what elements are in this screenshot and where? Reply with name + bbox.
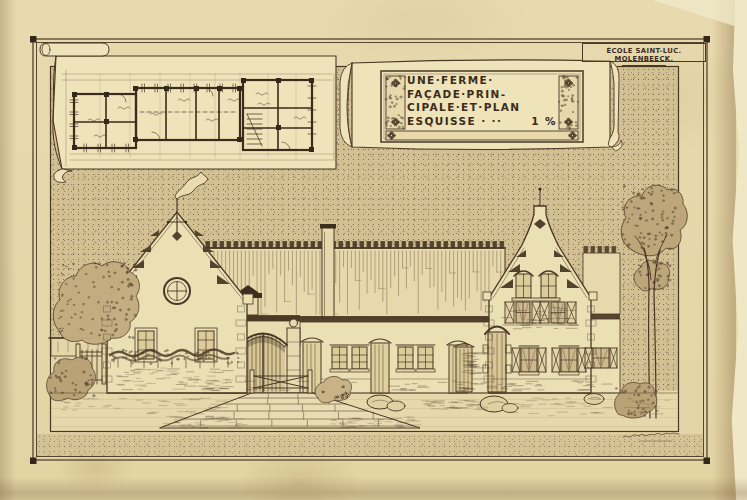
tree-right <box>615 185 688 418</box>
school-stamp-label: ÉCOLE SAINT-LUC. MOLENBEECK. <box>583 44 705 63</box>
floor-plan-scroll <box>40 43 336 183</box>
wing-window <box>585 348 617 368</box>
title-cartouche: UNE·FERME· FAÇADE·PRIN- CIPALE·ET·PLAN E… <box>407 73 557 134</box>
page-bottom-shadow <box>0 477 747 500</box>
weathervane <box>167 172 208 231</box>
school-stamp: ÉCOLE SAINT-LUC. MOLENBEECK. <box>582 43 706 62</box>
bush-right <box>615 382 657 418</box>
elevation-and-plan-artwork <box>0 0 747 500</box>
cartouche-line-1: UNE·FERME· <box>407 73 557 87</box>
artist-signature <box>623 433 679 441</box>
wing-door <box>454 344 474 393</box>
cartouche-line-3: CIPALE·ET·PLAN <box>407 101 557 115</box>
cartouche-esquisse: ESQUISSE · ·· <box>407 115 502 129</box>
oculus-window <box>164 278 190 304</box>
tree-left <box>53 262 139 345</box>
cartouche-scale: 1 % <box>531 115 557 129</box>
cartouche-line-4: ESQUISSE · ·· 1 % <box>407 115 557 129</box>
stamp-rule <box>622 65 666 66</box>
cartouche-line-2: FAÇADE·PRIN- <box>407 87 557 101</box>
scanned-drawing-plate: ÉCOLE SAINT-LUC. MOLENBEECK. UNE·FERME· … <box>0 0 747 500</box>
